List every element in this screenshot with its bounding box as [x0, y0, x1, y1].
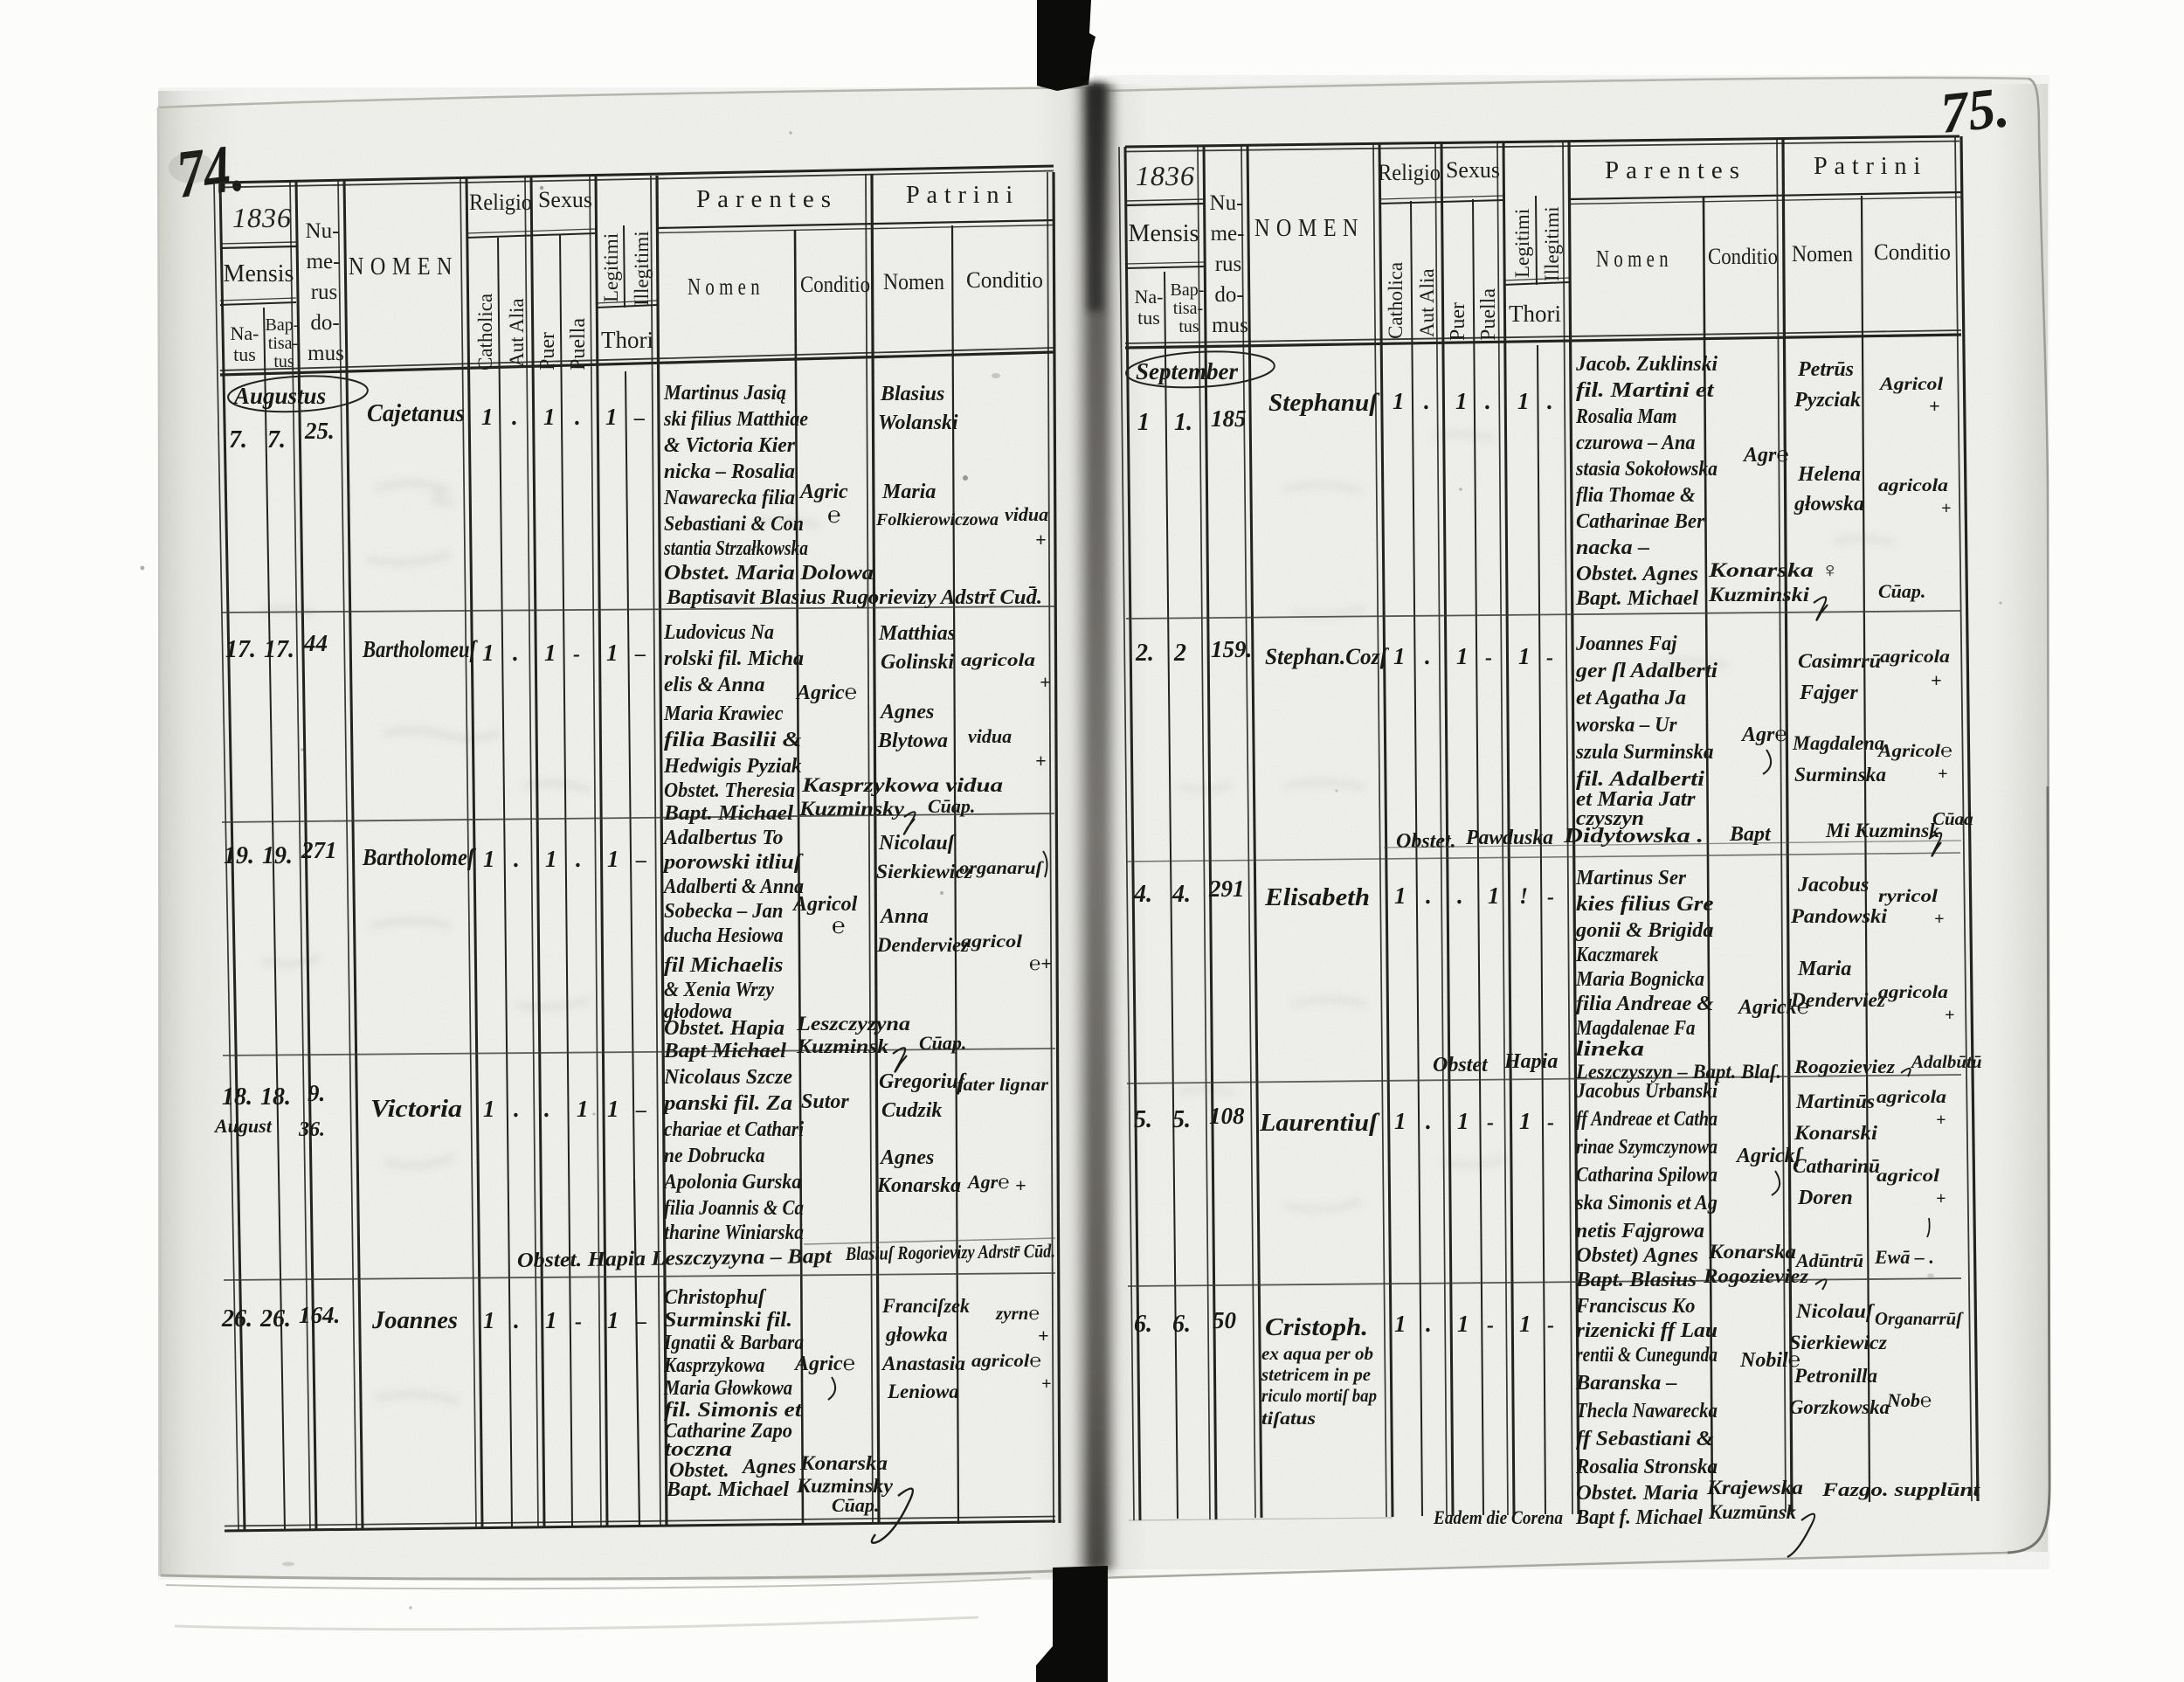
svg-text:-: -: [1485, 647, 1492, 669]
svg-text:℮: ℮: [832, 913, 846, 938]
svg-text:tus: tus: [1178, 317, 1199, 336]
svg-text:Cūaȧ: Cūaȧ: [1932, 808, 1973, 829]
svg-text:.: .: [512, 404, 518, 430]
svg-text:–: –: [633, 407, 645, 430]
svg-text:Conditio: Conditio: [1708, 244, 1778, 269]
svg-text:kies filius Gre: kies filius Gre: [1576, 893, 1714, 916]
svg-text:fil Michaelis: fil Michaelis: [664, 954, 784, 977]
svg-text:1: 1: [605, 404, 618, 430]
svg-text:Cūap.: Cūap.: [1878, 580, 1925, 602]
svg-text:.: .: [1426, 1108, 1432, 1134]
svg-text:NOMEN: NOMEN: [1254, 214, 1365, 242]
svg-text:1: 1: [544, 640, 556, 666]
svg-text:.: .: [514, 1096, 520, 1122]
svg-text:Obstet. Hapia Leszczyzyna –: Obstet. Hapia Leszczyzyna – Bapt: [517, 1245, 833, 1272]
svg-text:164.: 164.: [299, 1302, 340, 1328]
svg-text:18.: 18.: [222, 1083, 252, 1111]
svg-text:Petronilla: Petronilla: [1794, 1365, 1877, 1387]
svg-text:panski fil. Za: panski fil. Za: [662, 1092, 792, 1115]
svg-text:1: 1: [1456, 643, 1469, 669]
svg-text:Agr℮: Agr℮: [1740, 723, 1787, 746]
svg-text:mus: mus: [1212, 314, 1248, 337]
svg-text:1: 1: [577, 1096, 589, 1122]
svg-text:stasia Sokołowska: stasia Sokołowska: [1575, 458, 1717, 481]
svg-text:-: -: [575, 1311, 582, 1333]
svg-text:Sobecka – Jan: Sobecka – Jan: [664, 900, 784, 923]
svg-text:Konarska ♀: Konarska ♀: [1708, 559, 1840, 581]
svg-text:Catharina Spilowa: Catharina Spilowa: [1576, 1164, 1717, 1187]
svg-text:Jacobus Urbanski: Jacobus Urbanski: [1575, 1080, 1717, 1103]
svg-text:rinae Szymczynowa: rinae Szymczynowa: [1576, 1136, 1717, 1159]
svg-text:ski filius Matthiae: ski filius Matthiae: [663, 408, 808, 431]
svg-text:Jacob. Zuklinski: Jacob. Zuklinski: [1575, 353, 1717, 376]
svg-text:NOMEN: NOMEN: [349, 253, 459, 280]
svg-text:+: +: [1941, 499, 1951, 518]
svg-text:36.: 36.: [298, 1118, 325, 1141]
svg-text:1: 1: [1393, 388, 1405, 414]
svg-text:25.: 25.: [304, 418, 335, 444]
svg-text:Obstet.: Obstet.: [1396, 830, 1456, 853]
svg-text:.: .: [575, 404, 581, 430]
svg-text:+: +: [1931, 669, 1942, 691]
svg-text:Baranska –: Baranska –: [1575, 1372, 1677, 1395]
svg-text:Bapt. Blasius: Bapt. Blasius: [1575, 1269, 1697, 1291]
svg-text:.: .: [1424, 388, 1430, 414]
svg-text:1.: 1.: [1174, 409, 1192, 436]
svg-text:et Agatha Ja: et Agatha Ja: [1576, 687, 1686, 709]
svg-text:44: 44: [303, 630, 328, 656]
svg-text:szula Surminska: szula Surminska: [1575, 741, 1713, 764]
svg-text:Patrini: Patrini: [906, 181, 1019, 209]
svg-text:elis & Anna: elis & Anna: [664, 674, 765, 696]
svg-text:5.: 5.: [1172, 1106, 1191, 1133]
svg-text:Kuzminsky: Kuzminsky: [798, 798, 905, 820]
svg-text:17.: 17.: [264, 636, 294, 663]
svg-text:Nicolauſ: Nicolauſ: [878, 832, 957, 855]
svg-text:-: -: [1547, 1314, 1554, 1337]
svg-text:1: 1: [543, 404, 556, 430]
svg-text:17.: 17.: [225, 636, 256, 663]
svg-text:Kuzminski: Kuzminski: [1708, 584, 1810, 606]
svg-text:do-: do-: [310, 311, 339, 335]
svg-text:Agnes: Agnes: [879, 701, 934, 723]
svg-text:.: .: [513, 640, 519, 666]
svg-text:.: .: [576, 846, 582, 872]
svg-text:fil. Martini et: fil. Martini et: [1576, 379, 1715, 402]
svg-text:Bapt f. Michael: Bapt f. Michael: [1575, 1506, 1703, 1529]
svg-text:Agr℮: Agr℮: [966, 1171, 1009, 1193]
svg-text:Baptisavit Blasius Rugorievi: Baptisavit Blasius Rugorievizy Adstrt̄ C…: [666, 586, 1042, 609]
svg-text:+: +: [1936, 1189, 1946, 1208]
svg-text:7.: 7.: [267, 426, 286, 453]
svg-text:Bartholomeuſ: Bartholomeuſ: [362, 636, 478, 662]
svg-text:mus: mus: [308, 342, 344, 365]
svg-text:Nu-: Nu-: [306, 219, 340, 243]
svg-text:+: +: [1929, 395, 1940, 417]
svg-text:Konarski: Konarski: [1794, 1122, 1878, 1144]
svg-text:Sutor: Sutor: [801, 1090, 849, 1113]
svg-text:agricol: agricol: [1876, 1165, 1939, 1186]
svg-text:Organarrūſ: Organarrūſ: [1875, 1308, 1964, 1329]
svg-text:Leniowa: Leniowa: [887, 1381, 959, 1402]
svg-text:1: 1: [1457, 1311, 1469, 1337]
svg-text:Parentes: Parentes: [1605, 156, 1746, 184]
svg-text:Nob℮: Nob℮: [1886, 1389, 1932, 1411]
svg-text:1836: 1836: [1136, 160, 1195, 191]
svg-text:Denderviez: Denderviez: [876, 934, 969, 956]
svg-text:Agnes: Agnes: [879, 1146, 934, 1169]
svg-text:.: .: [1425, 643, 1431, 669]
svg-text:Nicolaus Szcze: Nicolaus Szcze: [663, 1066, 792, 1089]
svg-text:stetricem in pe: stetricem in pe: [1261, 1364, 1371, 1385]
svg-text:+: +: [1015, 1174, 1026, 1196]
svg-text:Obstet. Agnes: Obstet. Agnes: [1576, 563, 1698, 585]
svg-text:organaruſ: organaruſ: [959, 857, 1044, 878]
svg-text:Magdalenae Fa: Magdalenae Fa: [1575, 1017, 1695, 1040]
svg-text:zyrn℮: zyrn℮: [995, 1303, 1040, 1324]
svg-text:.: .: [1426, 883, 1432, 909]
svg-text:Gregoriuſ: Gregoriuſ: [879, 1070, 967, 1093]
svg-text:26.: 26.: [221, 1305, 252, 1332]
svg-text:1: 1: [607, 1307, 619, 1333]
svg-text:Ewā – .: Ewā – .: [1874, 1246, 1934, 1268]
svg-text:Maria: Maria: [1797, 958, 1851, 980]
svg-text:.: .: [514, 846, 520, 872]
svg-text:toczna: toczna: [664, 1438, 732, 1461]
svg-text:Catholica: Catholica: [1385, 262, 1406, 339]
svg-text:nacka –: nacka –: [1576, 536, 1649, 559]
svg-text:Franciscus Ko: Franciscus Ko: [1575, 1295, 1695, 1318]
svg-text:1: 1: [482, 640, 494, 666]
svg-text:4.: 4.: [1171, 881, 1191, 908]
svg-text:Adalberti & Anna: Adalberti & Anna: [662, 876, 804, 898]
svg-text:Laurentiuſ: Laurentiuſ: [1259, 1110, 1380, 1137]
svg-text:Casimrrū: Casimrrū: [1798, 650, 1881, 672]
svg-text:rizenicki ff Lau: rizenicki ff Lau: [1576, 1319, 1717, 1342]
svg-text:-: -: [1547, 1111, 1554, 1134]
svg-text:Catholica: Catholica: [474, 294, 496, 370]
svg-text:me-: me-: [307, 250, 341, 273]
svg-text:1: 1: [606, 640, 619, 666]
svg-text:1: 1: [607, 1096, 619, 1122]
svg-text:1: 1: [1394, 883, 1406, 909]
svg-text:271: 271: [301, 837, 337, 863]
svg-text:Franciſzek: Franciſzek: [881, 1295, 970, 1317]
svg-text:Helena: Helena: [1797, 463, 1861, 486]
svg-text:Obstet. Hapia: Obstet. Hapia: [664, 1017, 784, 1040]
svg-text:Bartholomeſ: Bartholomeſ: [362, 844, 477, 870]
svg-text:ff Sebastiani &: ff Sebastiani &: [1576, 1428, 1714, 1450]
svg-text:Kasprzykowa vidua: Kasprzykowa vidua: [801, 774, 1003, 796]
svg-text:Catharinae Ber: Catharinae Ber: [1576, 510, 1705, 533]
svg-text:50: 50: [1213, 1307, 1237, 1333]
svg-text:Gorzkowska: Gorzkowska: [1789, 1396, 1890, 1418]
svg-text:1: 1: [1137, 409, 1150, 436]
svg-text:Sebastiani & Con: Sebastiani & Con: [664, 513, 804, 536]
svg-text:Mi Kuzminsk: Mi Kuzminsk: [1825, 820, 1940, 841]
svg-text:Religio: Religio: [1378, 160, 1441, 185]
svg-text:agricola: agricola: [1876, 1086, 1946, 1107]
svg-text:-: -: [1547, 886, 1554, 909]
svg-text:agricola: agricola: [961, 649, 1035, 670]
svg-text:Nomen: Nomen: [883, 269, 944, 294]
svg-text:+: +: [1038, 1325, 1049, 1346]
svg-text:filia Andreae &: filia Andreae &: [1576, 993, 1714, 1015]
svg-text:1: 1: [1518, 643, 1531, 669]
svg-text:1: 1: [481, 404, 494, 430]
svg-text:Bapt. Michael: Bapt. Michael: [663, 802, 793, 825]
svg-text:Patrini: Patrini: [1814, 152, 1927, 180]
svg-text:Wolanski: Wolanski: [878, 412, 958, 434]
svg-text:Anastasia: Anastasia: [881, 1353, 965, 1374]
svg-text:2: 2: [1173, 640, 1186, 667]
svg-text:159.: 159.: [1211, 636, 1252, 662]
svg-text:6.: 6.: [1134, 1311, 1152, 1338]
svg-text:Blytowa: Blytowa: [877, 730, 948, 752]
svg-text:August: August: [213, 1115, 273, 1137]
svg-text:1: 1: [483, 846, 495, 872]
svg-text:tus: tus: [1137, 307, 1160, 329]
svg-text:Thecla Nawarecka: Thecla Nawarecka: [1576, 1400, 1717, 1422]
svg-text:Thori: Thori: [1509, 301, 1561, 327]
svg-text:Elisabeth: Elisabeth: [1264, 883, 1370, 911]
svg-text:Rosalia Stronska: Rosalia Stronska: [1575, 1456, 1717, 1478]
svg-text:Sexus: Sexus: [538, 187, 592, 212]
svg-text:Martinus Ser: Martinus Ser: [1575, 867, 1687, 889]
svg-text:ger ſl Adalberti: ger ſl Adalberti: [1575, 660, 1717, 682]
svg-text:worska – Ur: worska – Ur: [1576, 714, 1677, 737]
svg-text:+: +: [1938, 765, 1947, 784]
svg-text:9.: 9.: [308, 1080, 325, 1106]
svg-text:Aut Alia: Aut Alia: [1416, 268, 1438, 337]
svg-text:Cajetanus: Cajetanus: [367, 399, 465, 427]
svg-text:Cūap.: Cūap.: [928, 795, 975, 817]
svg-text:rentii & Cunegunda: rentii & Cunegunda: [1576, 1344, 1717, 1367]
svg-text:porowski itliuſ: porowski itliuſ: [662, 851, 804, 874]
svg-text:Joannes Faj: Joannes Faj: [1575, 633, 1677, 655]
svg-text:Conditio: Conditio: [1874, 239, 1951, 265]
svg-text:1: 1: [545, 846, 557, 872]
svg-text:vidua: vidua: [1005, 503, 1048, 525]
svg-text:tharine Winiarska: tharine Winiarska: [664, 1222, 804, 1244]
svg-text:Agric℮: Agric℮: [795, 682, 857, 704]
svg-text:18.: 18.: [260, 1083, 291, 1111]
svg-text:-: -: [573, 643, 580, 666]
svg-text:Surminski fil.: Surminski fil.: [664, 1309, 792, 1332]
svg-text:ne Dobrucka: ne Dobrucka: [664, 1145, 765, 1167]
svg-text:tisa-: tisa-: [268, 334, 298, 353]
svg-text:Na-: Na-: [1135, 286, 1164, 308]
svg-text:2.: 2.: [1135, 640, 1154, 667]
svg-text:–: –: [635, 1099, 646, 1122]
svg-text:Na-: Na-: [231, 322, 259, 344]
svg-text:czurowa – Ana: czurowa – Ana: [1576, 432, 1696, 454]
svg-text:6.: 6.: [1172, 1311, 1191, 1338]
svg-text:Aut Alia: Aut Alia: [506, 298, 528, 367]
svg-text:Cūap.: Cūap.: [919, 1032, 966, 1054]
svg-text:℮: ℮: [827, 502, 841, 528]
svg-text:+: +: [1040, 671, 1051, 693]
svg-text:Victoria: Victoria: [370, 1095, 462, 1123]
svg-text:1: 1: [1519, 1311, 1531, 1337]
svg-text:Joannes: Joannes: [371, 1306, 458, 1334]
svg-text:.: .: [544, 1096, 550, 1122]
svg-text:1: 1: [1455, 388, 1468, 414]
svg-text:Religio: Religio: [469, 190, 532, 215]
svg-text:Konarska: Konarska: [1708, 1241, 1796, 1263]
svg-text:filia Joannis & Ca: filia Joannis & Ca: [664, 1197, 804, 1220]
svg-text:agricola: agricola: [1880, 646, 1950, 667]
svg-text:Fazgo. supplūnt: Fazgo. supplūnt: [1821, 1478, 1980, 1500]
svg-text:Conditio: Conditio: [966, 267, 1043, 293]
svg-text:Kaczmarek: Kaczmarek: [1575, 944, 1658, 966]
svg-text:tus: tus: [233, 343, 256, 365]
svg-text:Petrūs: Petrūs: [1797, 358, 1854, 381]
svg-text:185: 185: [1211, 405, 1247, 432]
svg-text:Obstet. Maria Dolowa: Obstet. Maria Dolowa: [664, 562, 874, 585]
svg-text:Pyzciak: Pyzciak: [1794, 389, 1861, 412]
svg-text:Stephanuſ: Stephanuſ: [1268, 389, 1380, 417]
svg-text:Puer: Puer: [536, 332, 559, 370]
svg-text:Nomen: Nomen: [1596, 246, 1673, 272]
svg-text:1: 1: [1488, 883, 1500, 909]
svg-text:Bapt. Michael: Bapt. Michael: [666, 1478, 789, 1501]
svg-text:Magdalena: Magdalena: [1792, 732, 1884, 754]
svg-text:+: +: [1945, 1006, 1954, 1025]
svg-text:–: –: [635, 849, 646, 872]
svg-text:Bap-: Bap-: [1171, 280, 1205, 300]
svg-text:Bapt. Michael: Bapt. Michael: [1575, 587, 1698, 610]
svg-text:.: .: [514, 1307, 520, 1333]
svg-text:1: 1: [1457, 1108, 1469, 1134]
svg-text:Agric℮: Agric℮: [793, 1353, 855, 1375]
svg-text:Agricol℮: Agricol℮: [1876, 740, 1952, 761]
svg-text:Apolonia Gurska: Apolonia Gurska: [662, 1171, 801, 1194]
svg-text:Puella: Puella: [1477, 288, 1500, 341]
svg-text:Leszczyzyna: Leszczyzyna: [796, 1013, 910, 1035]
svg-text:Agricol: Agricol: [791, 893, 858, 916]
svg-text:flia Thomae &: flia Thomae &: [1576, 484, 1696, 507]
svg-text:agricol: agricol: [961, 931, 1022, 952]
svg-text:Mensis: Mensis: [1129, 220, 1199, 247]
svg-text:me-: me-: [1211, 222, 1245, 246]
svg-text:1: 1: [607, 846, 619, 872]
svg-text:Sierkiewicz: Sierkiewicz: [876, 861, 972, 883]
svg-text:ryricol: ryricol: [1878, 885, 1938, 906]
svg-text:Kuzminsk: Kuzminsk: [796, 1035, 889, 1057]
svg-text:Maria Bognicka: Maria Bognicka: [1575, 968, 1704, 991]
svg-text:7.: 7.: [229, 426, 247, 453]
svg-text:Matthias: Matthias: [878, 622, 956, 645]
svg-text:Pandowski: Pandowski: [1790, 905, 1888, 927]
svg-text:Agr℮: Agr℮: [1742, 444, 1789, 467]
svg-text:1: 1: [483, 1307, 495, 1333]
svg-text:Puella: Puella: [567, 318, 590, 370]
svg-text:Nicolauſ: Nicolauſ: [1795, 1300, 1876, 1322]
svg-text:Martinūs: Martinūs: [1795, 1090, 1875, 1112]
svg-text:nicka – Rosalia: nicka – Rosalia: [664, 460, 795, 483]
svg-text:netis Fajgrowa: netis Fajgrowa: [1576, 1220, 1704, 1242]
svg-text:1836: 1836: [232, 202, 292, 233]
svg-text:Maria: Maria: [881, 481, 936, 503]
svg-text:Hedwigis Pyziak: Hedwigis Pyziak: [663, 755, 801, 778]
svg-text:tisa-: tisa-: [1173, 299, 1203, 318]
svg-text:.: .: [1547, 388, 1553, 414]
svg-text:Maria Głowkowa: Maria Głowkowa: [663, 1377, 792, 1400]
svg-text:& Victoria Kier: & Victoria Kier: [664, 434, 796, 457]
svg-text:1: 1: [1517, 388, 1530, 414]
svg-text:Rogozieviez: Rogozieviez: [1703, 1265, 1808, 1287]
svg-text:Bapt Michael: Bapt Michael: [663, 1040, 786, 1062]
svg-text:Krajewska: Krajewska: [1706, 1477, 1803, 1499]
svg-text:Rosalia Mam: Rosalia Mam: [1575, 405, 1676, 428]
svg-text:ff Andreae et Catha: ff Andreae et Catha: [1576, 1108, 1717, 1131]
svg-text:–: –: [634, 643, 646, 666]
svg-text:–: –: [635, 1311, 646, 1333]
svg-text:Illegitimi: Illegitimi: [1541, 206, 1563, 281]
svg-text:108: 108: [1209, 1103, 1245, 1129]
svg-text:September: September: [1136, 358, 1238, 384]
svg-text:Catharinū: Catharinū: [1793, 1155, 1880, 1177]
svg-text:291: 291: [1208, 876, 1245, 902]
svg-text:ex aqua per ob: ex aqua per ob: [1261, 1343, 1373, 1364]
svg-text:Conditio: Conditio: [800, 272, 870, 297]
svg-text:vidua: vidua: [968, 725, 1012, 747]
svg-text:Fajger: Fajger: [1799, 682, 1858, 704]
svg-text:Bap-: Bap-: [266, 315, 300, 335]
svg-text:-: -: [1487, 1314, 1494, 1337]
svg-text:do-: do-: [1214, 283, 1243, 307]
svg-text:Denderviez: Denderviez: [1790, 989, 1885, 1011]
svg-text:Konarska: Konarska: [799, 1452, 888, 1474]
svg-text:19.: 19.: [224, 842, 254, 869]
svg-text:Sexus: Sexus: [1446, 157, 1500, 183]
svg-text:Parentes: Parentes: [696, 185, 838, 213]
svg-text:.: .: [1457, 883, 1463, 909]
svg-text:Golinski: Golinski: [881, 651, 954, 674]
svg-text:filia Basilii &: filia Basilii &: [664, 729, 802, 751]
svg-text:tus: tus: [273, 352, 294, 371]
svg-text:Doren: Doren: [1797, 1187, 1853, 1209]
svg-text:+: +: [1035, 750, 1047, 772]
svg-text:Adalbūtū: Adalbūtū: [1910, 1051, 1982, 1072]
svg-text:Obstet) Agnes: Obstet) Agnes: [1576, 1244, 1698, 1267]
svg-text:Christophuſ: Christophuſ: [664, 1286, 766, 1309]
svg-text:Agric: Agric: [798, 481, 848, 503]
svg-text:Nu-: Nu-: [1210, 191, 1244, 215]
svg-text:.: .: [1485, 388, 1491, 414]
svg-text:rolski fil. Micha: rolski fil. Micha: [664, 647, 804, 670]
svg-text:℮+: ℮+: [1029, 952, 1052, 974]
svg-text:Cudzik: Cudzik: [881, 1099, 942, 1122]
svg-text:Obstet. Maria: Obstet. Maria: [1576, 1482, 1698, 1505]
svg-text:& Xenia Wrzy: & Xenia Wrzy: [664, 979, 774, 1001]
svg-text:Kasprzykowa: Kasprzykowa: [663, 1354, 764, 1377]
svg-text:Legitimi: Legitimi: [600, 233, 622, 302]
svg-text:tiſatus: tiſatus: [1261, 1408, 1316, 1429]
svg-text:Ignatii & Barbara: Ignatii & Barbara: [663, 1332, 804, 1354]
svg-text:1: 1: [483, 1096, 495, 1122]
svg-text:+: +: [1936, 1111, 1946, 1130]
svg-text:Blasiuſ Rogorievizy Adrstr̄: Blasiuſ Rogorievizy Adrstr̄ Cūd.: [845, 1240, 1055, 1264]
svg-text:Hapia: Hapia: [1503, 1050, 1558, 1073]
svg-text:riculo mortiſ bap: riculo mortiſ bap: [1261, 1385, 1377, 1406]
svg-text:Augustus: Augustus: [232, 383, 326, 409]
svg-text:Cūap.: Cūap.: [832, 1494, 879, 1516]
svg-text:-: -: [1487, 1111, 1494, 1134]
svg-text:1: 1: [1519, 1108, 1531, 1134]
svg-text:Agricol: Agricol: [1878, 373, 1943, 394]
